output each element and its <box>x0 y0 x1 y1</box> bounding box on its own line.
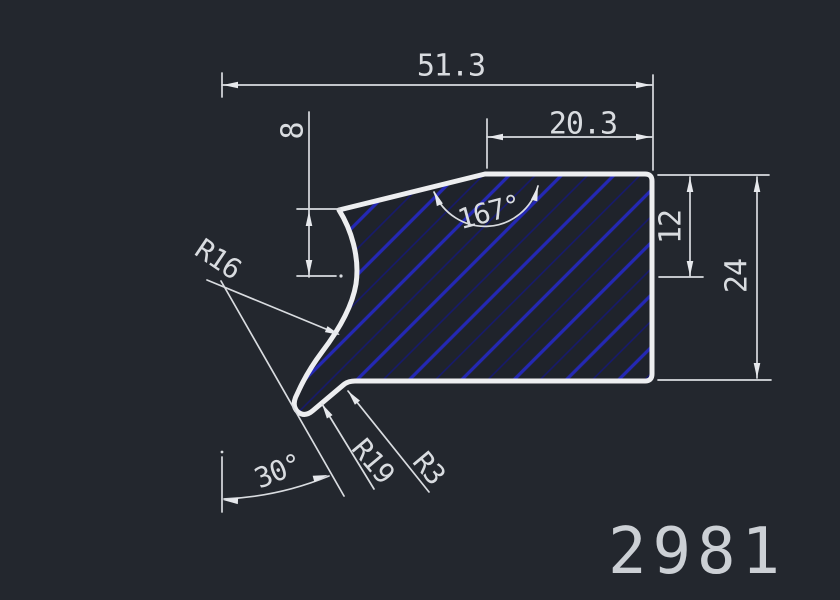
cad-viewport[interactable]: 51.3 20.3 8 167° 12 <box>0 0 840 600</box>
cad-drawing-canvas[interactable]: 51.3 20.3 8 167° 12 <box>0 0 840 600</box>
part-number: 2981 <box>608 515 786 589</box>
dim-upper-width-label: 20.3 <box>549 107 617 142</box>
dim-total-height-label: 24 <box>720 259 755 293</box>
dim-left-drop-label: 8 <box>276 122 311 139</box>
dim-right-upper-height-label: 12 <box>654 210 689 244</box>
dim-total-width-label: 51.3 <box>417 49 485 84</box>
